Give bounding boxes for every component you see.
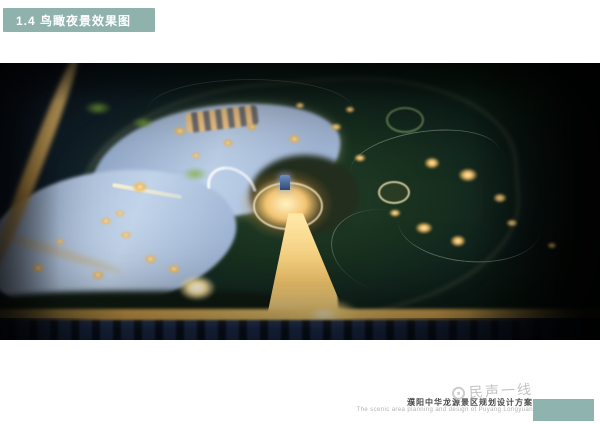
section-title-bar: 1.4 鸟瞰夜景效果图 xyxy=(3,8,155,32)
watermark: 民声一线 xyxy=(452,379,534,403)
section-title: 1.4 鸟瞰夜景效果图 xyxy=(16,12,131,29)
watermark-logo-icon xyxy=(452,386,466,400)
footer-accent-block xyxy=(533,399,594,421)
aerial-night-rendering xyxy=(0,63,600,340)
project-title-en: The scenic area planning and design of P… xyxy=(233,407,533,413)
photo-vignette xyxy=(0,63,600,340)
watermark-text: 民声一线 xyxy=(469,379,534,402)
presentation-slide: 1.4 鸟瞰夜景效果图 民声一线 xyxy=(0,0,600,424)
